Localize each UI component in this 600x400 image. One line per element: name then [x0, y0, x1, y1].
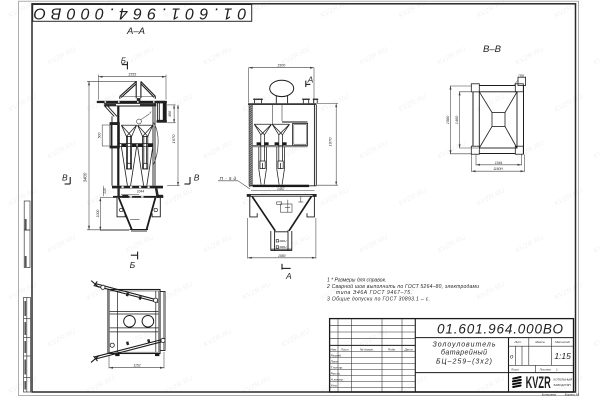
svg-text:батарейный: батарейный	[441, 349, 487, 357]
svg-text:3400: 3400	[82, 172, 87, 182]
svg-text:Б: Б	[130, 260, 136, 270]
svg-text:Подп.: Подп.	[388, 347, 396, 351]
svg-text:1 * Размеры для справок.: 1 * Размеры для справок.	[327, 278, 386, 284]
svg-text:1580: 1580	[278, 254, 286, 258]
svg-text:Пров.: Пров.	[331, 360, 339, 364]
svg-text:210: 210	[103, 188, 107, 195]
svg-text:1000: 1000	[96, 210, 100, 218]
svg-text:Лит.: Лит.	[513, 340, 521, 344]
svg-text:№ докум.: № докум.	[360, 347, 374, 351]
svg-text:1555: 1555	[128, 72, 136, 76]
svg-text:В–В: В–В	[483, 44, 502, 55]
svg-text:1044: 1044	[495, 161, 503, 165]
svg-text:Изм.: Изм.	[330, 347, 337, 351]
svg-text:Т.контр.: Т.контр.	[331, 366, 344, 370]
svg-text:Утв.: Утв.	[331, 384, 338, 388]
svg-text:3 Общие допуски по ГОСТ 30893.: 3 Общие допуски по ГОСТ 30893.1 – с.	[327, 296, 430, 302]
svg-text:Лист: Лист	[510, 368, 519, 372]
svg-text:1:15: 1:15	[554, 351, 571, 361]
svg-text:300Н: 300Н	[279, 239, 287, 243]
svg-text:1152: 1152	[133, 363, 140, 367]
svg-text:1044: 1044	[137, 189, 145, 193]
svg-text:1670: 1670	[171, 134, 176, 144]
svg-text:1580: 1580	[446, 115, 450, 124]
svg-text:Разраб.: Разраб.	[331, 354, 342, 358]
svg-text:П-5д: П-5д	[220, 176, 237, 181]
svg-text:1: 1	[556, 368, 558, 372]
svg-text:Масштаб: Масштаб	[555, 340, 570, 344]
svg-text:Масса: Масса	[535, 340, 544, 344]
svg-text:В: В	[62, 173, 68, 183]
svg-text:KVZR: KVZR	[526, 373, 551, 392]
svg-text:А: А	[307, 74, 314, 84]
svg-text:1670: 1670	[327, 137, 332, 147]
svg-text:Формат А3: Формат А3	[565, 393, 580, 397]
svg-text:В: В	[194, 173, 200, 183]
svg-text:ЗАВОД РЭП: ЗАВОД РЭП	[554, 383, 571, 387]
svg-text:А: А	[285, 271, 292, 281]
svg-text:1460: 1460	[455, 115, 459, 124]
svg-text:Дата: Дата	[404, 347, 413, 351]
svg-text:Лист: Лист	[340, 347, 349, 351]
svg-text:КОТЕЛЬНЫЙ: КОТЕЛЬНЫЙ	[554, 378, 573, 382]
svg-text:Б: Б	[121, 56, 126, 65]
svg-text:400Н: 400Н	[279, 245, 287, 249]
svg-text:450: 450	[168, 110, 172, 117]
svg-text:Рук.гр.: Рук.гр.	[331, 372, 341, 376]
svg-text:1160Н: 1160Н	[493, 167, 503, 171]
svg-text:Копировал: Копировал	[542, 393, 557, 397]
svg-text:1482: 1482	[277, 187, 285, 191]
svg-text:БЦ–259–(3х2): БЦ–259–(3х2)	[436, 359, 492, 366]
svg-text:1500: 1500	[277, 63, 285, 67]
svg-text:Листов: Листов	[539, 368, 552, 372]
svg-text:типа Э46А ГОСТ 9467–75.: типа Э46А ГОСТ 9467–75.	[336, 290, 412, 296]
svg-text:Золоуловитель: Золоуловитель	[433, 341, 496, 348]
svg-text:01.601.964.000ВО: 01.601.964.000ВО	[437, 322, 563, 337]
svg-text:А–А: А–А	[126, 26, 145, 37]
svg-text:500: 500	[98, 133, 102, 139]
svg-text:2 Сварной шов выполнить по ГОС: 2 Сварной шов выполнить по ГОСТ 5264–80,…	[326, 283, 479, 290]
svg-text:П5В: П5В	[519, 73, 525, 77]
svg-text:Н.контр.: Н.контр.	[331, 378, 344, 382]
